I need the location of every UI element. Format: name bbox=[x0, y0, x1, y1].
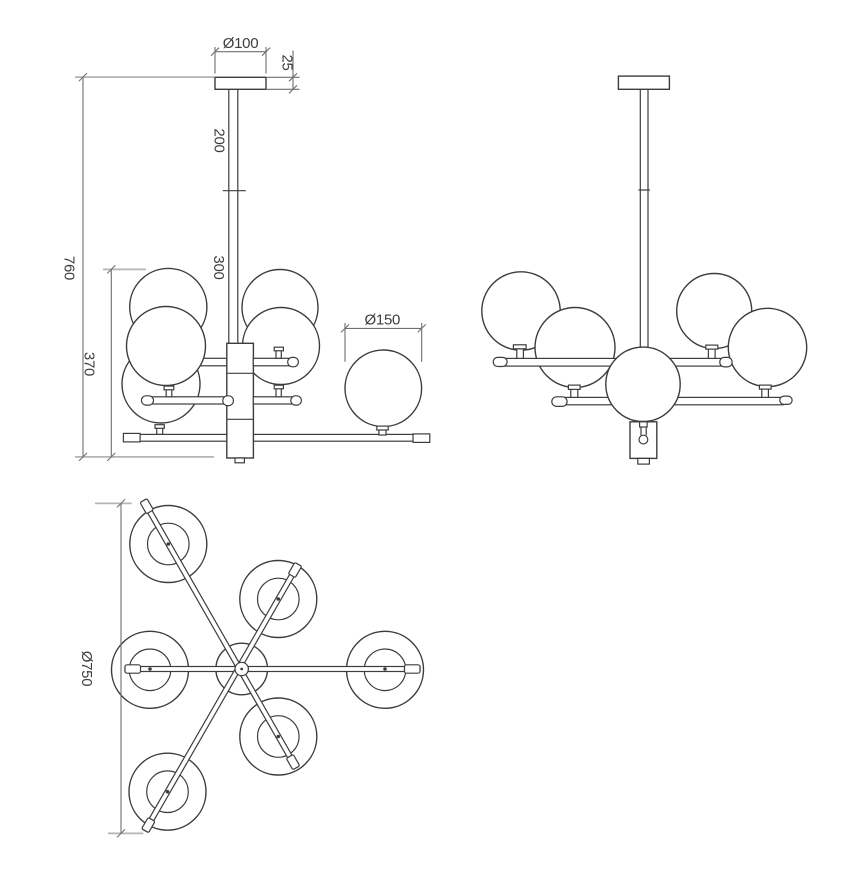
plan-dot bbox=[167, 542, 171, 546]
side-globe-second-left bbox=[535, 308, 615, 388]
plan-dot bbox=[383, 667, 387, 671]
front-hub-foot bbox=[235, 458, 244, 463]
dim-label-canopy-height: 25 bbox=[279, 54, 296, 70]
side-hub-ball bbox=[639, 435, 648, 444]
plan-dot bbox=[166, 790, 170, 794]
side-globe-central bbox=[606, 347, 680, 421]
front-mid-arm-right bbox=[253, 397, 295, 404]
dim-label-body-height: 370 bbox=[81, 352, 98, 376]
dim-label-overall-height: 760 bbox=[61, 256, 78, 280]
side-stem bbox=[640, 89, 648, 348]
front-mid-arm-left bbox=[147, 397, 227, 404]
front-flange-far-right bbox=[377, 426, 388, 430]
front-bottom-arm-left-cap bbox=[123, 433, 140, 442]
side-fixture bbox=[482, 76, 807, 464]
dim-label-overall-diameter: Ø750 bbox=[78, 651, 95, 687]
side-upper-arm-right-cap bbox=[720, 357, 732, 367]
front-stem bbox=[229, 89, 238, 346]
side-flange-far-right bbox=[759, 385, 771, 389]
front-flange-mid-left bbox=[164, 386, 174, 390]
front-canopy bbox=[215, 77, 266, 89]
side-hub-nipple bbox=[640, 422, 648, 427]
dim-label-canopy-diameter: Ø100 bbox=[223, 35, 259, 52]
plan-hub-dot bbox=[240, 668, 243, 671]
front-mid-arm-inner-cap bbox=[223, 396, 234, 406]
plan-dot bbox=[148, 667, 152, 671]
side-flange-upper-right bbox=[706, 345, 718, 349]
dim-label-globe-diameter: Ø150 bbox=[365, 312, 401, 329]
plan-rod-horizontal bbox=[125, 665, 420, 673]
front-flange-upper-right bbox=[274, 347, 283, 351]
drawing-page: 760 370 200 300 Ø100 25 bbox=[0, 0, 868, 868]
side-mid-arm-right-cap bbox=[780, 396, 792, 404]
front-view: 760 370 200 300 Ø100 25 bbox=[61, 35, 430, 463]
plan-fixture bbox=[112, 499, 424, 833]
side-flange-far-left bbox=[513, 345, 526, 349]
plan-dot bbox=[277, 735, 281, 739]
side-globe-far-right bbox=[728, 308, 806, 386]
front-top-arm-right bbox=[253, 358, 289, 366]
side-view bbox=[482, 76, 807, 464]
plan-dot bbox=[277, 597, 281, 601]
side-mid-arm-left-cap bbox=[552, 397, 567, 407]
front-flange-mid-right bbox=[274, 385, 283, 389]
side-upper-arm-left-cap bbox=[493, 357, 507, 366]
side-post-far-left bbox=[517, 349, 524, 359]
front-fixture bbox=[122, 77, 430, 463]
front-mid-arm-right-cap bbox=[291, 396, 302, 405]
dim-label-lower-rod: 300 bbox=[210, 255, 227, 279]
plan-view: Ø750 bbox=[78, 499, 424, 838]
front-globe-far-right bbox=[345, 350, 422, 427]
side-hub-foot bbox=[638, 458, 650, 464]
technical-drawing: 760 370 200 300 Ø100 25 bbox=[0, 0, 868, 868]
front-mid-arm-left-cap bbox=[141, 396, 153, 405]
front-top-arm-right-cap bbox=[288, 357, 299, 366]
front-flange-lower-left bbox=[155, 425, 164, 429]
side-post-upper-right bbox=[708, 349, 715, 359]
front-globe-mid-left bbox=[127, 307, 206, 386]
side-canopy bbox=[618, 76, 669, 89]
dim-label-upper-rod: 200 bbox=[211, 128, 228, 152]
front-bottom-arm-right-cap bbox=[413, 434, 430, 443]
side-flange-second-left bbox=[568, 385, 580, 389]
front-bottom-arm bbox=[130, 434, 421, 441]
